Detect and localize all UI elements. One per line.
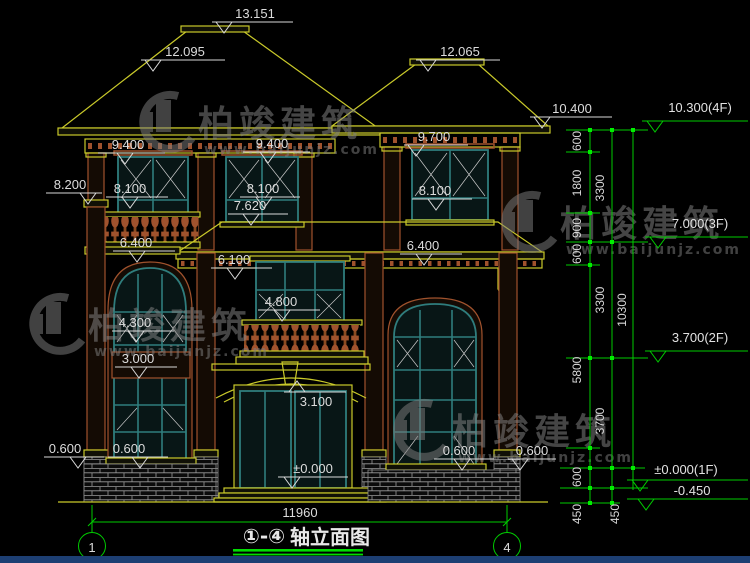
svg-text:10.400: 10.400 — [552, 101, 592, 116]
svg-text:6.100: 6.100 — [218, 252, 251, 267]
svg-text:8.100: 8.100 — [114, 181, 147, 196]
svg-text:4: 4 — [503, 540, 510, 555]
svg-text:±0.000: ±0.000 — [293, 461, 333, 476]
dim-450-b: 450 — [608, 504, 622, 524]
svg-text:-0.450: -0.450 — [674, 483, 711, 498]
svg-text:4.800: 4.800 — [265, 294, 298, 309]
overall-width-dim: 11960 — [282, 505, 317, 520]
level-2f: 3.700(2F) — [645, 330, 748, 362]
svg-text:0.600: 0.600 — [49, 441, 82, 456]
drawing-title: ①-④ 轴立面图 — [233, 524, 370, 555]
svg-text:12.095: 12.095 — [165, 44, 205, 59]
title-underline — [233, 549, 363, 552]
level-neg-0450: -0.450 — [627, 483, 748, 510]
svg-text:8.100: 8.100 — [247, 181, 280, 196]
roof-right — [332, 59, 550, 133]
dim-600-c: 600 — [570, 467, 584, 487]
svg-text:8.100: 8.100 — [419, 183, 452, 198]
svg-text:±0.000(1F): ±0.000(1F) — [654, 462, 718, 477]
dim-1800: 1800 — [570, 169, 584, 196]
dim-600-b: 600 — [570, 244, 584, 264]
svg-text:9.700: 9.700 — [418, 129, 451, 144]
dim-600-a: 600 — [570, 131, 584, 151]
dim-450-a: 450 — [570, 504, 584, 524]
mark-10400: 10.400 — [530, 101, 612, 128]
dim-10300: 10300 — [615, 293, 629, 327]
svg-text:3.700(2F): 3.700(2F) — [672, 330, 728, 345]
dim-3700: 3700 — [593, 407, 607, 434]
svg-text:7.620: 7.620 — [234, 198, 267, 213]
svg-text:0.600: 0.600 — [443, 443, 476, 458]
svg-text:6.400: 6.400 — [120, 235, 153, 250]
footer-blue-bar — [0, 556, 750, 563]
svg-text:10.300(4F): 10.300(4F) — [668, 100, 732, 115]
title-text: 轴立面图 — [290, 525, 370, 549]
mark-12065: 12.065 — [416, 44, 500, 71]
watermark-url: www.baijunjz.com — [566, 242, 741, 258]
elevation-drawing: 柏竣建筑 www.baijunjz.com 柏竣建筑 www.baijunjz.… — [0, 0, 750, 563]
title-axis-range: ①-④ — [243, 524, 285, 548]
window-2f-center — [250, 256, 350, 322]
dim-5800: 5800 — [570, 356, 584, 383]
svg-text:0.600: 0.600 — [516, 443, 549, 458]
watermark-url: www.baijunjz.com — [204, 142, 379, 158]
svg-text:0.600: 0.600 — [113, 441, 146, 456]
svg-text:6.400: 6.400 — [407, 238, 440, 253]
svg-text:7.000(3F): 7.000(3F) — [672, 216, 728, 231]
right-level-markers: 10.300(4F) 7.000(3F) 3.700(2F) ±0.000(1F… — [627, 100, 748, 510]
svg-text:12.065: 12.065 — [440, 44, 480, 59]
svg-text:4.300: 4.300 — [119, 315, 152, 330]
level-4f: 10.300(4F) — [642, 100, 748, 132]
svg-text:3.000: 3.000 — [122, 351, 155, 366]
dim-3300-a: 3300 — [593, 174, 607, 201]
svg-text:9.400: 9.400 — [256, 136, 289, 151]
dim-900: 900 — [570, 218, 584, 238]
svg-text:13.151: 13.151 — [235, 6, 275, 21]
watermark-brand: 柏竣建筑 — [88, 306, 252, 347]
window-arched-right — [368, 298, 520, 502]
svg-text:8.200: 8.200 — [54, 177, 87, 192]
cad-elevation-canvas: 柏竣建筑 www.baijunjz.com 柏竣建筑 www.baijunjz.… — [0, 0, 750, 563]
svg-text:3.100: 3.100 — [300, 394, 333, 409]
svg-text:9.400: 9.400 — [112, 137, 145, 152]
dim-3300-b: 3300 — [593, 286, 607, 313]
svg-text:1: 1 — [88, 540, 95, 555]
watermark-url: www.baijunjz.com — [94, 344, 269, 360]
